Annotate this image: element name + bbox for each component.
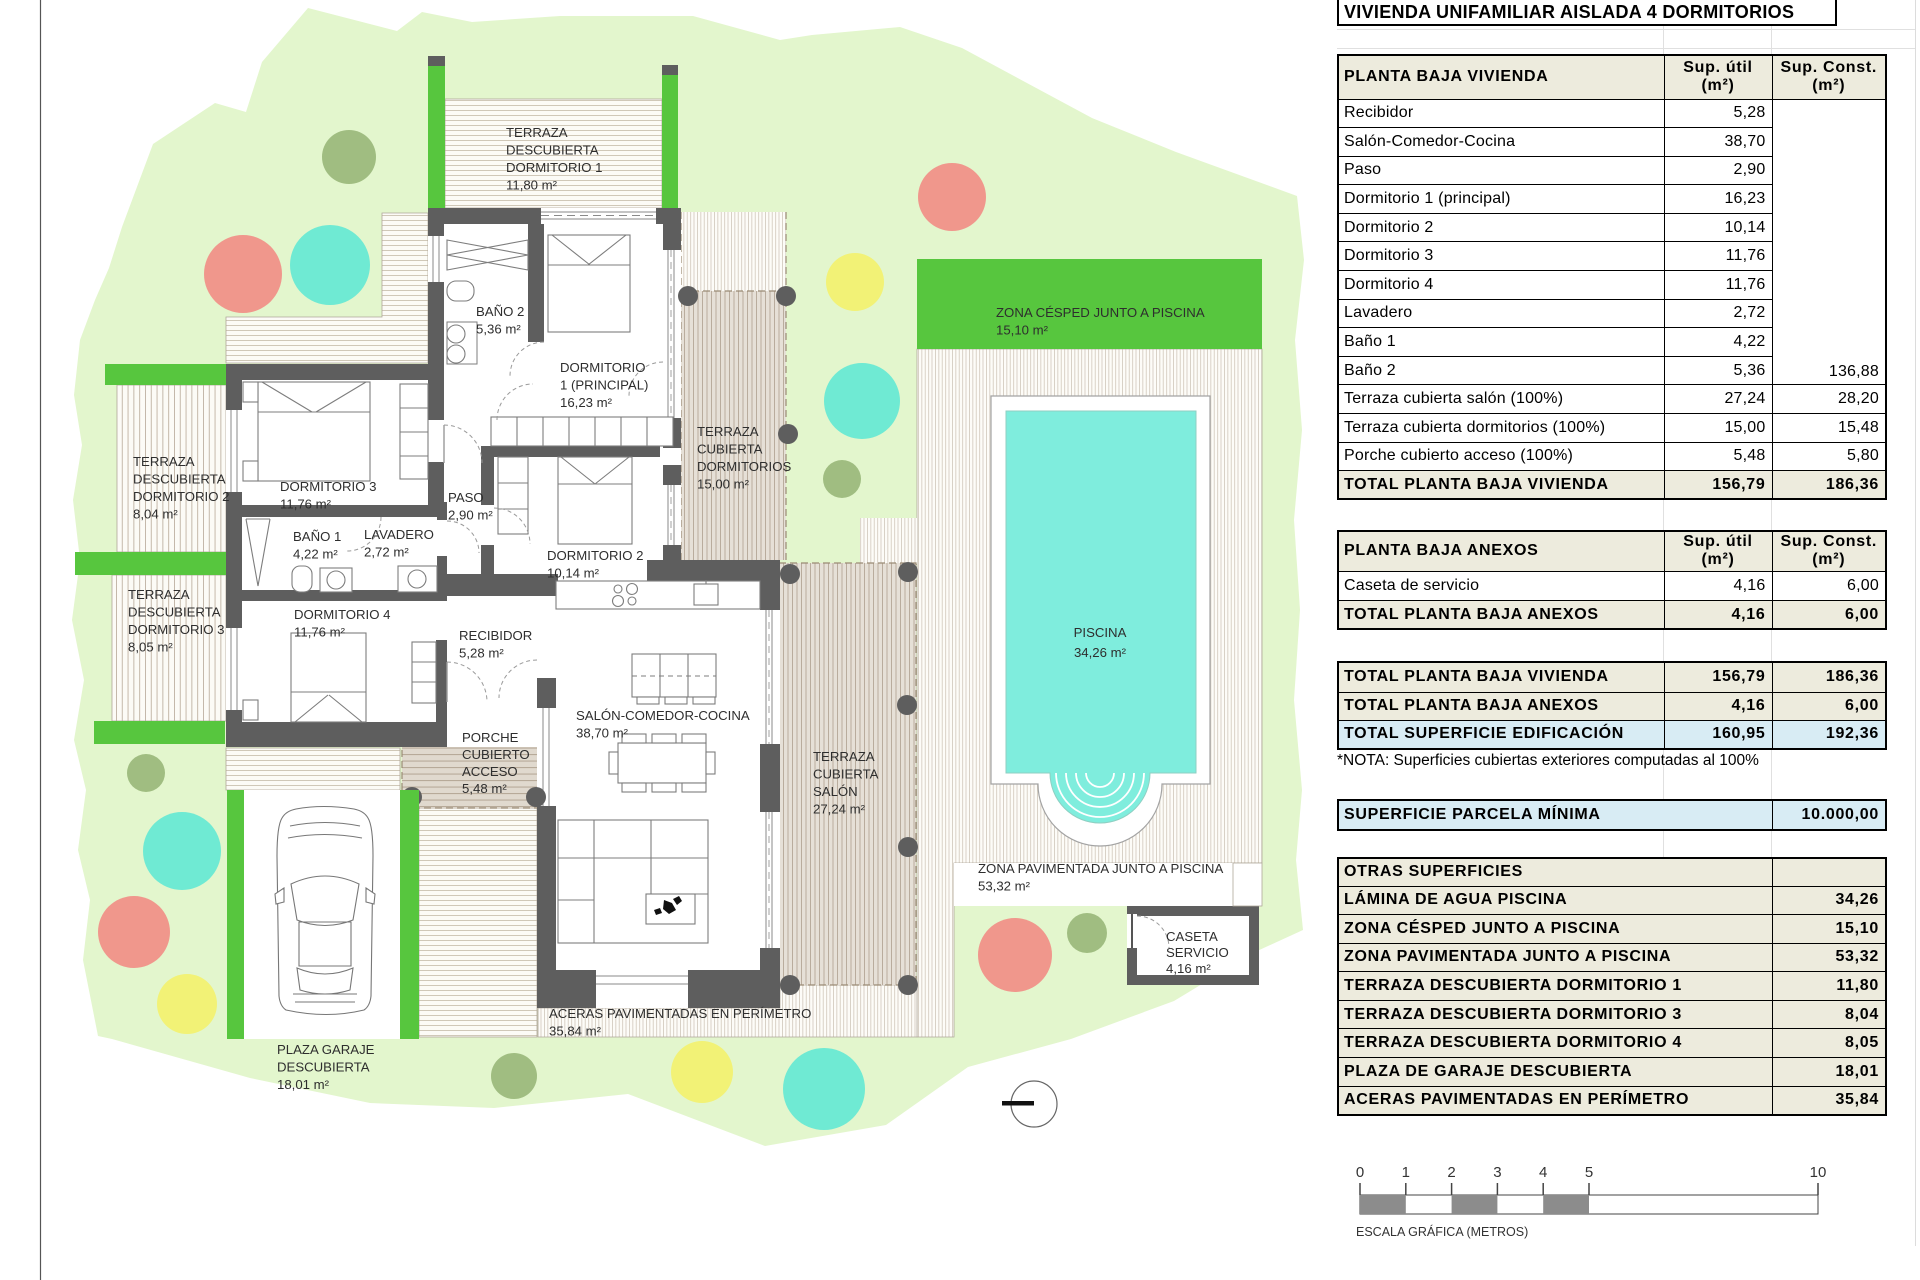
svg-text:DESCUBIERTA: DESCUBIERTA xyxy=(277,1060,370,1075)
svg-text:5: 5 xyxy=(1585,1164,1593,1181)
svg-text:PISCINA: PISCINA xyxy=(1074,625,1127,640)
svg-text:BAÑO 2: BAÑO 2 xyxy=(476,304,524,319)
svg-text:DORMITORIOS: DORMITORIOS xyxy=(697,459,791,474)
svg-text:TERRAZA: TERRAZA xyxy=(813,749,875,764)
svg-text:DORMITORIO 2: DORMITORIO 2 xyxy=(547,548,643,563)
svg-text:35,84 m²: 35,84 m² xyxy=(549,1024,602,1039)
svg-text:ESCALA GRÁFICA (METROS): ESCALA GRÁFICA (METROS) xyxy=(1356,1224,1528,1239)
svg-text:TERRAZA: TERRAZA xyxy=(506,125,568,140)
svg-text:SALÓN: SALÓN xyxy=(813,784,858,799)
svg-text:PLAZA GARAJE: PLAZA GARAJE xyxy=(277,1042,375,1057)
svg-text:SERVICIO: SERVICIO xyxy=(1166,945,1229,960)
svg-text:DORMITORIO 3: DORMITORIO 3 xyxy=(128,622,224,637)
svg-text:5,36 m²: 5,36 m² xyxy=(476,322,521,337)
svg-text:3: 3 xyxy=(1493,1164,1501,1181)
svg-text:1 (PRINCIPAL): 1 (PRINCIPAL) xyxy=(560,378,648,393)
svg-text:TERRAZA: TERRAZA xyxy=(133,454,195,469)
svg-text:ACCESO: ACCESO xyxy=(462,764,518,779)
svg-text:2: 2 xyxy=(1447,1164,1455,1181)
svg-text:1: 1 xyxy=(1402,1164,1410,1181)
svg-text:11,76 m²: 11,76 m² xyxy=(294,625,346,640)
svg-text:4,16 m²: 4,16 m² xyxy=(1166,961,1211,976)
svg-text:15,10 m²: 15,10 m² xyxy=(996,323,1049,338)
svg-text:SALÓN-COMEDOR-COCINA: SALÓN-COMEDOR-COCINA xyxy=(576,708,750,723)
svg-text:RECIBIDOR: RECIBIDOR xyxy=(459,628,532,643)
svg-text:CASETA: CASETA xyxy=(1166,929,1218,944)
svg-text:CUBIERTA: CUBIERTA xyxy=(697,442,763,457)
svg-text:34,26 m²: 34,26 m² xyxy=(1074,645,1127,660)
svg-text:8,05 m²: 8,05 m² xyxy=(128,640,173,655)
svg-text:LAVADERO: LAVADERO xyxy=(364,527,434,542)
svg-text:5,28 m²: 5,28 m² xyxy=(459,646,504,661)
svg-text:8,04 m²: 8,04 m² xyxy=(133,507,178,522)
svg-text:TERRAZA: TERRAZA xyxy=(128,587,190,602)
svg-text:10,14 m²: 10,14 m² xyxy=(547,566,600,581)
svg-text:PASO: PASO xyxy=(448,490,484,505)
svg-text:2,90 m²: 2,90 m² xyxy=(448,508,493,523)
svg-text:DORMITORIO: DORMITORIO xyxy=(560,360,645,375)
svg-text:38,70 m²: 38,70 m² xyxy=(576,726,629,741)
svg-text:15,00 m²: 15,00 m² xyxy=(697,477,750,492)
svg-text:11,76 m²: 11,76 m² xyxy=(280,497,332,512)
svg-text:4: 4 xyxy=(1539,1164,1547,1181)
svg-text:BAÑO 1: BAÑO 1 xyxy=(293,529,341,544)
svg-text:TERRAZA: TERRAZA xyxy=(697,424,759,439)
svg-text:CUBIERTA: CUBIERTA xyxy=(813,767,879,782)
svg-text:DESCUBIERTA: DESCUBIERTA xyxy=(506,143,599,158)
svg-text:2,72 m²: 2,72 m² xyxy=(364,545,409,560)
svg-text:4,22 m²: 4,22 m² xyxy=(293,547,338,562)
svg-text:11,80 m²: 11,80 m² xyxy=(506,178,558,193)
svg-text:DORMITORIO 2: DORMITORIO 2 xyxy=(133,489,229,504)
svg-text:CUBIERTO: CUBIERTO xyxy=(462,747,530,762)
svg-text:53,32 m²: 53,32 m² xyxy=(978,879,1031,894)
svg-text:18,01 m²: 18,01 m² xyxy=(277,1077,330,1092)
svg-text:ZONA PAVIMENTADA JUNTO A PISCI: ZONA PAVIMENTADA JUNTO A PISCINA xyxy=(978,861,1223,876)
svg-text:DORMITORIO 1: DORMITORIO 1 xyxy=(506,160,602,175)
svg-text:27,24 m²: 27,24 m² xyxy=(813,802,866,817)
svg-text:16,23 m²: 16,23 m² xyxy=(560,395,613,410)
svg-text:PORCHE: PORCHE xyxy=(462,730,519,745)
svg-text:0: 0 xyxy=(1356,1164,1364,1181)
svg-text:ACERAS PAVIMENTADAS EN PERÍMET: ACERAS PAVIMENTADAS EN PERÍMETRO xyxy=(549,1006,811,1021)
svg-text:DORMITORIO 4: DORMITORIO 4 xyxy=(294,607,390,622)
svg-text:DORMITORIO 3: DORMITORIO 3 xyxy=(280,479,376,494)
svg-text:DESCUBIERTA: DESCUBIERTA xyxy=(128,605,221,620)
svg-text:DESCUBIERTA: DESCUBIERTA xyxy=(133,472,226,487)
svg-text:5,48 m²: 5,48 m² xyxy=(462,781,507,796)
svg-text:10: 10 xyxy=(1810,1164,1827,1181)
svg-text:ZONA CÉSPED JUNTO A PISCINA: ZONA CÉSPED JUNTO A PISCINA xyxy=(996,305,1205,320)
